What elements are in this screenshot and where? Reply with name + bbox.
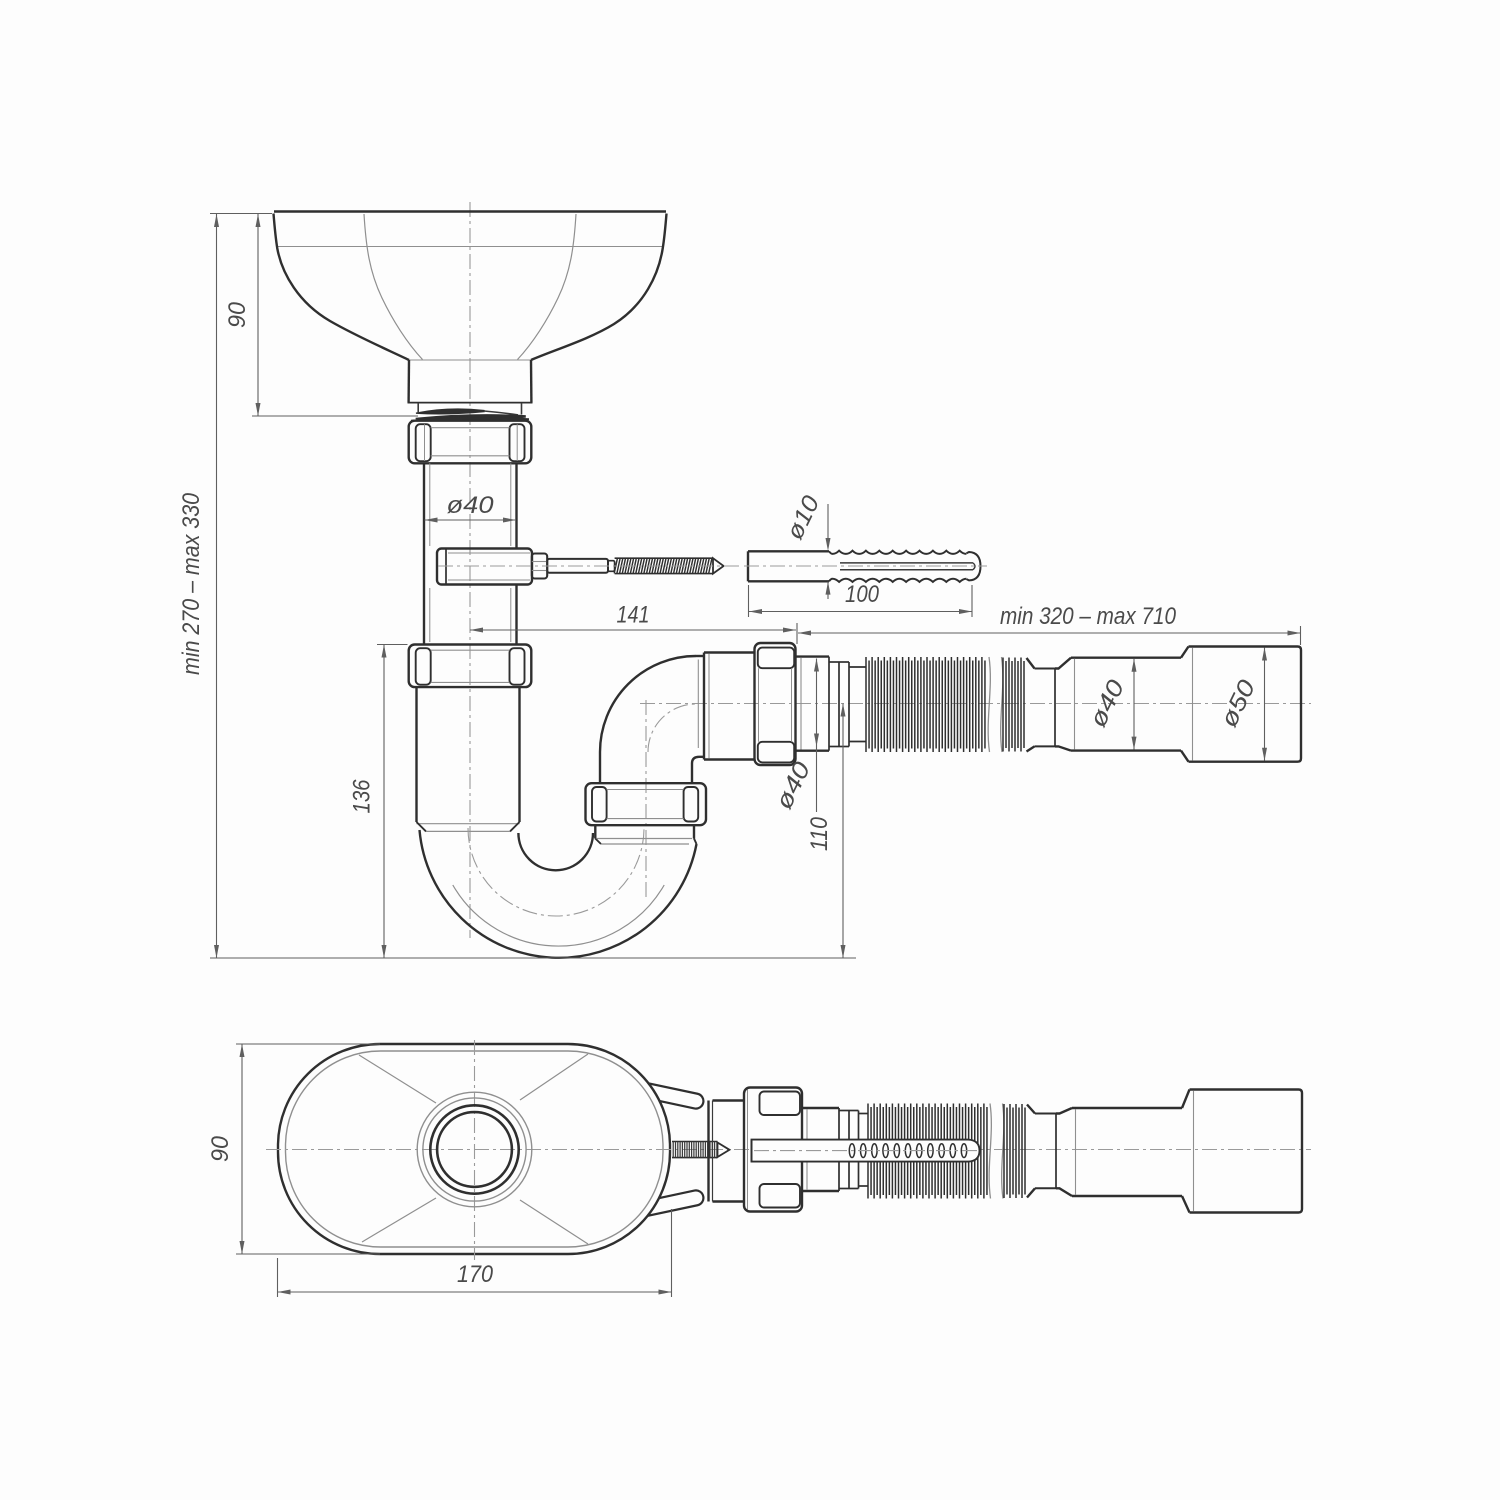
svg-text:90: 90 [224, 301, 251, 328]
svg-text:136: 136 [349, 779, 376, 814]
svg-text:min 320 – max 710: min 320 – max 710 [1000, 603, 1177, 630]
svg-text:ø10: ø10 [781, 491, 825, 544]
svg-text:ø40: ø40 [447, 492, 495, 519]
svg-text:90: 90 [207, 1135, 234, 1162]
svg-text:141: 141 [617, 602, 650, 629]
svg-text:110: 110 [806, 816, 833, 851]
svg-text:min 270 – max 330: min 270 – max 330 [178, 492, 205, 675]
svg-text:170: 170 [457, 1261, 494, 1288]
svg-text:100: 100 [845, 581, 880, 608]
